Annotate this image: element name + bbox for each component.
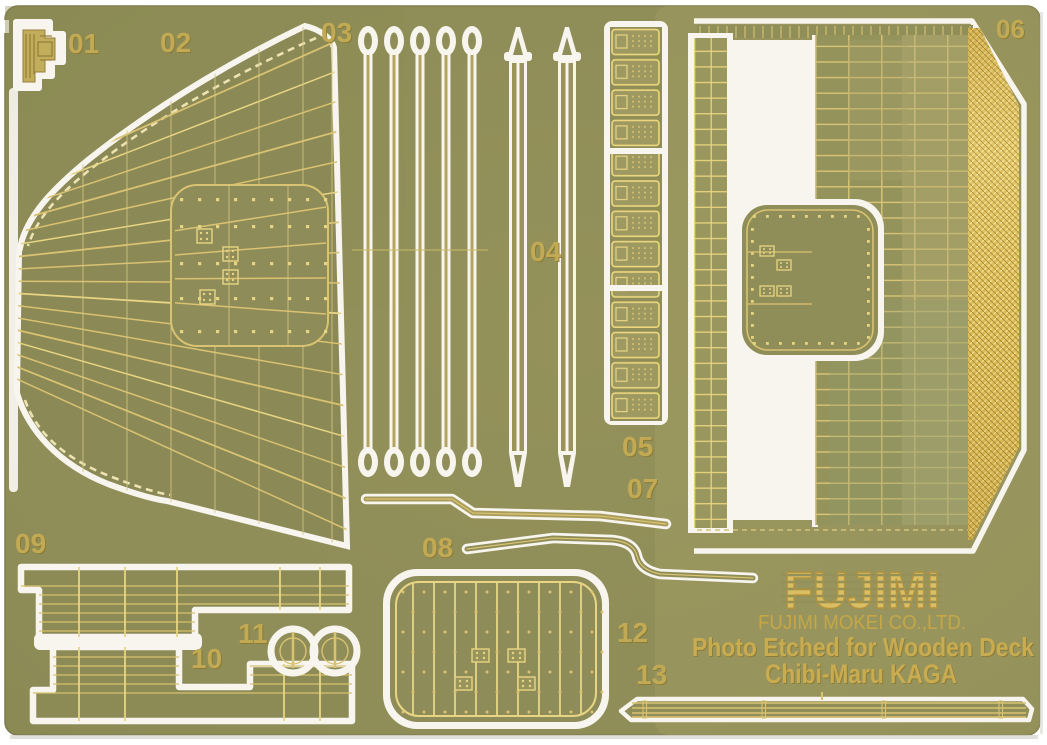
svg-text:10: 10 (191, 643, 222, 674)
svg-text:FUJIMI MOKEI CO.,LTD.: FUJIMI MOKEI CO.,LTD. (758, 612, 966, 634)
svg-text:07: 07 (627, 473, 658, 504)
svg-text:04: 04 (530, 236, 562, 267)
svg-text:13: 13 (636, 659, 667, 690)
svg-text:02: 02 (160, 27, 191, 58)
svg-text:03: 03 (321, 17, 352, 48)
svg-text:06: 06 (996, 14, 1025, 44)
svg-text:05: 05 (622, 431, 653, 462)
svg-text:Photo Etched for Wooden Deck: Photo Etched for Wooden Deck (692, 632, 1034, 662)
svg-text:08: 08 (422, 532, 453, 563)
svg-text:01: 01 (68, 28, 99, 59)
svg-text:11: 11 (238, 618, 268, 649)
svg-text:12: 12 (617, 617, 648, 648)
svg-text:09: 09 (15, 528, 46, 559)
svg-text:Chibi-Maru KAGA: Chibi-Maru KAGA (765, 659, 957, 689)
